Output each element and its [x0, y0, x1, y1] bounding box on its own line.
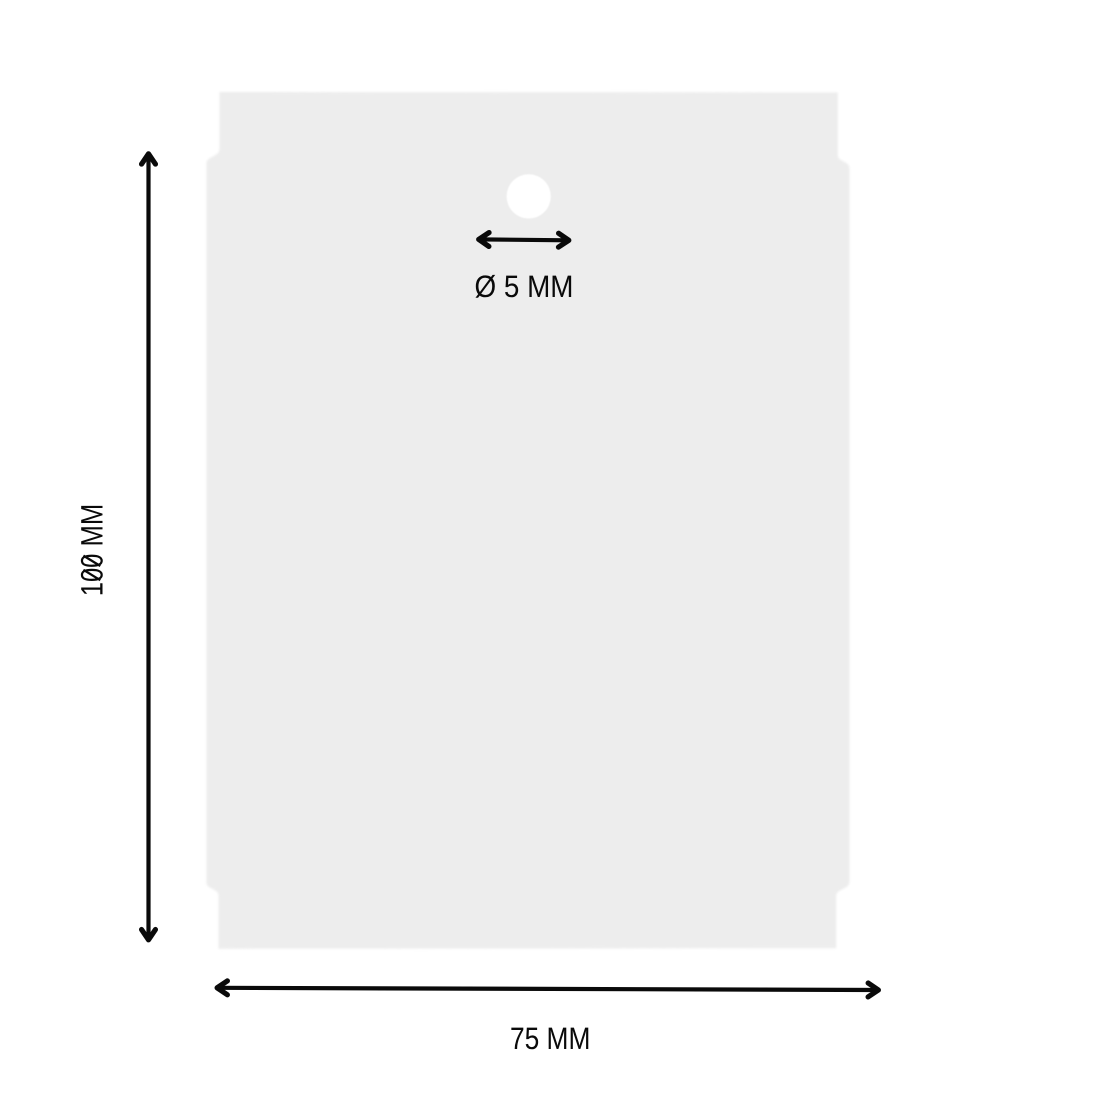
svg-text:100 MM: 100 MM [75, 504, 110, 597]
svg-text:Ø 5 MM: Ø 5 MM [475, 269, 574, 304]
svg-text:75 MM: 75 MM [510, 1021, 591, 1056]
